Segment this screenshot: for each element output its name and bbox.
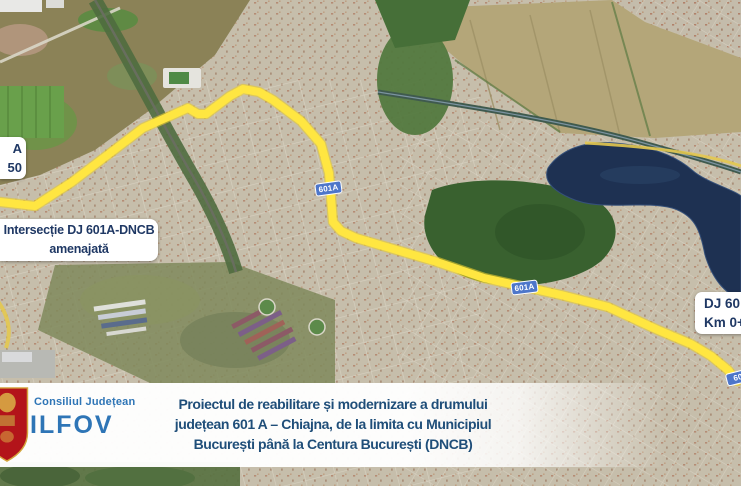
- ilfov-coat-of-arms-icon: [0, 386, 30, 464]
- project-title-line2: județean 601 A – Chiajna, de la limita c…: [142, 414, 524, 434]
- project-title-line3: București până la Centura București (DNC…: [142, 434, 524, 454]
- project-banner: Consiliul Județean ILFOV Proiectul de re…: [0, 383, 741, 467]
- label-km-left-line2: 50: [0, 158, 22, 177]
- org-name-large: ILFOV: [30, 411, 135, 440]
- label-intersection-line1: Intersecție DJ 601A-DNCB: [0, 221, 158, 240]
- map-screenshot: A 50 Intersecție DJ 601A-DNCB amenajată …: [0, 0, 741, 486]
- label-km-right-line2: Km 0+: [704, 313, 741, 332]
- org-identity: Consiliul Județean ILFOV: [30, 396, 135, 440]
- project-title: Proiectul de reabilitare și modernizare …: [142, 394, 524, 454]
- label-intersection: Intersecție DJ 601A-DNCB amenajată: [0, 219, 158, 261]
- label-km-right: DJ 60 Km 0+: [695, 292, 741, 334]
- label-km-right-line1: DJ 60: [704, 294, 741, 313]
- org-name-small: Consiliul Județean: [30, 396, 135, 408]
- label-km-left: A 50: [0, 137, 26, 179]
- label-km-left-line1: A: [0, 139, 22, 158]
- project-title-line1: Proiectul de reabilitare și modernizare …: [142, 394, 524, 414]
- label-intersection-line2: amenajată: [0, 240, 158, 259]
